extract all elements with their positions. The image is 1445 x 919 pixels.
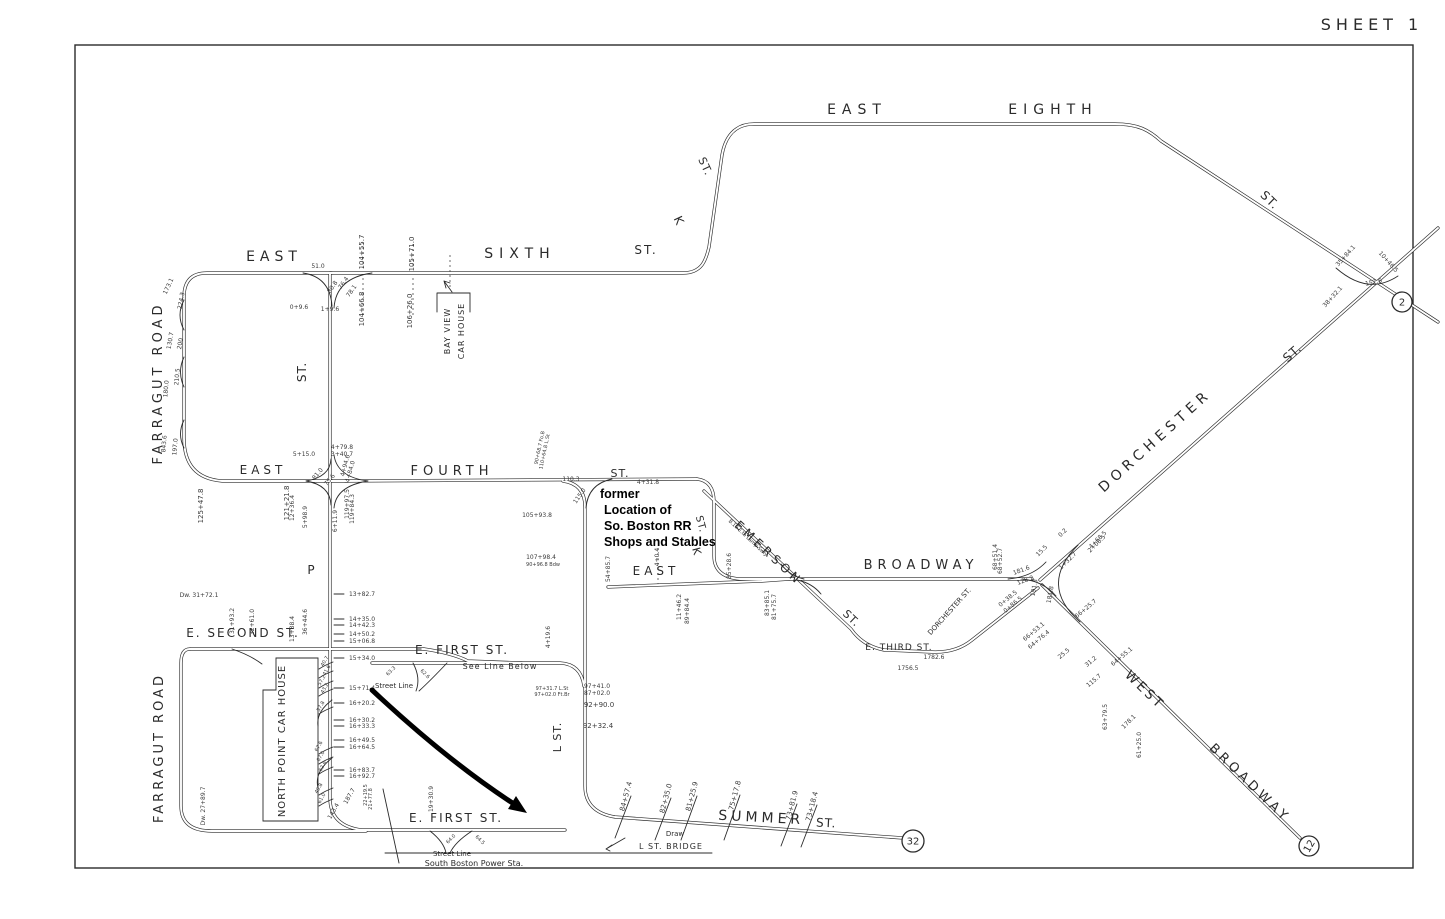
street-label: ST. (1258, 188, 1282, 212)
wye-first-upper (413, 663, 447, 691)
measurement-text: 119+84.3 (349, 494, 356, 524)
measurement-text: 68+52.7 (997, 548, 1004, 574)
measurement-text: 66+25.7 (1074, 598, 1099, 620)
measurement-text: Dw. 27+89.7 (200, 786, 207, 825)
street-label: DORCHESTER ST. (926, 587, 972, 637)
street-label: See Line Below (463, 662, 538, 671)
measurement-text: 63+79.5 (1102, 704, 1109, 730)
measurement-text: 54+85.7 (605, 556, 612, 582)
measurement-text: 110.3 (562, 476, 579, 483)
measurement-text: 0.2 (1057, 527, 1069, 539)
street-label: EAST (240, 463, 287, 477)
street-label: ST. (295, 362, 309, 382)
street-label: WEST (1122, 668, 1168, 713)
measurement-text: 1782.6 (924, 654, 945, 661)
measurement-text: 92+90.0 (584, 701, 614, 709)
measurement-text: 16+20.2 (349, 700, 375, 707)
measurement-text: 187.7 (342, 787, 357, 806)
street-label: ST. (1280, 341, 1304, 365)
measurement-text: 81+25.9 (684, 781, 700, 812)
measurement-text: 143.4 (326, 802, 341, 821)
street-label: ST. (693, 515, 708, 535)
street-label: BROADWAY (1206, 741, 1293, 826)
measurement-text: 38+32.1 (1322, 285, 1345, 309)
street-label: ST. (840, 607, 863, 629)
street-label: K (671, 214, 687, 228)
street-label: Draw (666, 830, 685, 838)
track-path-farragut-upper-loop (184, 273, 348, 481)
street-label: E. FIRST ST. (409, 811, 503, 825)
measurement-text: 84+57.4 (618, 780, 634, 812)
street-label: EAST (827, 102, 887, 118)
measurement-text: 82+35.0 (658, 783, 674, 814)
track-path-farragut-upper-loop (184, 273, 348, 481)
street-label: FARRAGUT ROAD (152, 673, 167, 823)
measurement-text: 19+30.9 (428, 786, 435, 812)
measurement-text: 4+19.6 (545, 626, 552, 648)
measurement-text: 130.7 (166, 331, 176, 349)
measurement-text: 115.7 (1085, 673, 1103, 690)
measurement-text: 210.5 (173, 368, 181, 386)
measurement-text: 106+26.0 (406, 294, 414, 329)
second-st-turnout (232, 649, 262, 664)
measurement-text: 85+28.6 (726, 553, 733, 579)
sheet-title: SHEET 1 (1321, 15, 1423, 34)
measurement-text: 12+36.4 (289, 495, 296, 521)
measurement-text: 16+64.5 (349, 744, 375, 751)
measurement-text: 1+9.6 (321, 306, 340, 313)
track-path-east-broadway-stub (608, 579, 790, 587)
measurement-text: 97+41.0 (584, 683, 610, 690)
street-label: ST. (611, 467, 630, 480)
measurement-text: 87+02.0 (584, 690, 610, 697)
measurement-text: 105+93.8 (522, 512, 552, 519)
street-label: E. THIRD ST. (865, 643, 932, 653)
street-label: P (307, 563, 314, 577)
measurement-text: 13+38.4 (289, 616, 296, 642)
street-label: ST. (816, 815, 837, 830)
street-label: L ST. BRIDGE (639, 842, 703, 851)
measurement-text: 62.6 (419, 668, 431, 680)
measurement-text: 843.6 (160, 435, 168, 453)
measurement-text: 5+15.0 (293, 451, 315, 458)
measurement-text: 6+11.9 (332, 510, 339, 532)
street-label: FOURTH (410, 464, 493, 479)
measurement-text: 15+06.8 (349, 638, 375, 645)
measurement-text: 21+77.8 (368, 788, 374, 810)
route-marker-number: 2 (1399, 298, 1405, 309)
track-path-sixth-k-eighth (330, 124, 1438, 322)
street-label: Street Line (433, 850, 471, 858)
measurement-text: 14+42.3 (349, 622, 375, 629)
measurement-text: 104+55.7 (358, 235, 366, 270)
measurement-text: 25.5 (1057, 647, 1072, 661)
measurement-text: 63.3 (385, 665, 397, 677)
route-markers-group: 23212 (902, 292, 1412, 856)
annotation-note-line: Shops and Stables (604, 535, 716, 549)
property-line (383, 789, 399, 863)
track-lines-inner (181, 124, 1438, 838)
measurement-text: 4+0.4 (654, 548, 661, 567)
annotation-note-line: former (600, 487, 640, 501)
measurement-text: 64.0 (445, 833, 457, 845)
measurement-text: 107+98.4 (526, 554, 556, 561)
street-label: EAST (246, 249, 302, 265)
track-map-sheet: SHEET 1 (0, 0, 1445, 919)
measurement-text: 89+84.4 (684, 598, 691, 624)
measurement-text: 178.1 (1120, 713, 1137, 730)
street-label: Street Line (375, 682, 413, 690)
route-marker-number: 32 (907, 837, 920, 848)
measurement-text: 16+92.7 (349, 773, 375, 780)
street-label: EIGHTH (1008, 102, 1097, 118)
measurement-text: 90+96.8 Bdw (526, 562, 560, 568)
measurement-text: 15+34.0 (349, 655, 375, 662)
street-label: ST. (634, 243, 657, 257)
street-label: NORTH POINT CAR HOUSE (277, 665, 288, 817)
measurement-text: 92+32.4 (583, 722, 614, 730)
measurement-text: 83+85.1 (764, 590, 771, 616)
annotation-note-line: Location of (604, 503, 672, 517)
measurement-text: 81.0 (311, 467, 325, 482)
measurement-text: 125+47.8 (197, 489, 205, 524)
street-label: CAR HOUSE (457, 303, 466, 359)
measurement-text: 14+50.2 (349, 631, 375, 638)
street-label: BAY VIEW (443, 308, 452, 355)
measurement-text: 36+44.6 (302, 609, 309, 635)
measurement-text: Dw. 31+72.1 (180, 592, 219, 599)
measurement-text: 4+31.8 (637, 479, 659, 486)
measurement-text: 67.6 (314, 740, 325, 753)
annotation-arrow (372, 690, 514, 804)
street-label: SIXTH (484, 246, 555, 262)
measurement-text: 16+49.5 (349, 737, 375, 744)
measurement-text: 104+66.8 (358, 292, 366, 327)
measurement-text: 75+17.8 (727, 780, 743, 811)
street-label: L ST. (551, 722, 564, 753)
annotation-arrowhead (508, 796, 527, 813)
measurement-text: 0+9.6 (290, 304, 309, 311)
ladder-station-ticks (334, 594, 344, 776)
measurement-text: 5+98.9 (302, 506, 309, 528)
measurement-text: 11+46.2 (676, 594, 683, 620)
measurement-text: 16+33.3 (349, 723, 375, 730)
street-label: BROADWAY (864, 558, 979, 573)
south-boston-track-map-svg: SHEET 1 (0, 0, 1445, 919)
measurement-text: 81+75.7 (771, 594, 778, 620)
measurement-text: 197.0 (171, 438, 179, 456)
measurement-text: 97+02.0 Ft.Br (534, 692, 570, 698)
measurement-text: 31+93.2 (229, 608, 236, 634)
street-label: ST. (695, 155, 715, 178)
measurement-text: 78.1 (345, 284, 359, 299)
measurement-text: 173.1 (162, 277, 176, 296)
street-label: E. FIRST ST. (415, 643, 509, 657)
measurement-text: 1756.5 (898, 665, 919, 672)
street-label: South Boston Power Sta. (425, 859, 523, 868)
annotation-note-line: So. Boston RR (604, 519, 692, 533)
measurement-text: 64.5 (474, 834, 486, 846)
measurement-text: 31.2 (1084, 655, 1099, 669)
street-label: E. SECOND ST. (186, 626, 300, 640)
measurement-text: 105+71.0 (408, 237, 416, 272)
north-point-car-house-outline (263, 658, 318, 821)
measurement-text: 15.5 (1035, 544, 1050, 559)
track-path-sixth-k-eighth (330, 124, 1438, 322)
measurement-text: 4+79.8 (331, 444, 353, 451)
measurement-text: 51.0 (311, 263, 325, 270)
measurement-text: 61+25.0 (1136, 732, 1143, 758)
measurement-text: 13+82.7 (349, 591, 375, 598)
summer-st-end-arrow (606, 838, 625, 851)
measurement-text: 32+61.0 (249, 609, 256, 635)
measurement-text: 180.0 (162, 380, 170, 398)
